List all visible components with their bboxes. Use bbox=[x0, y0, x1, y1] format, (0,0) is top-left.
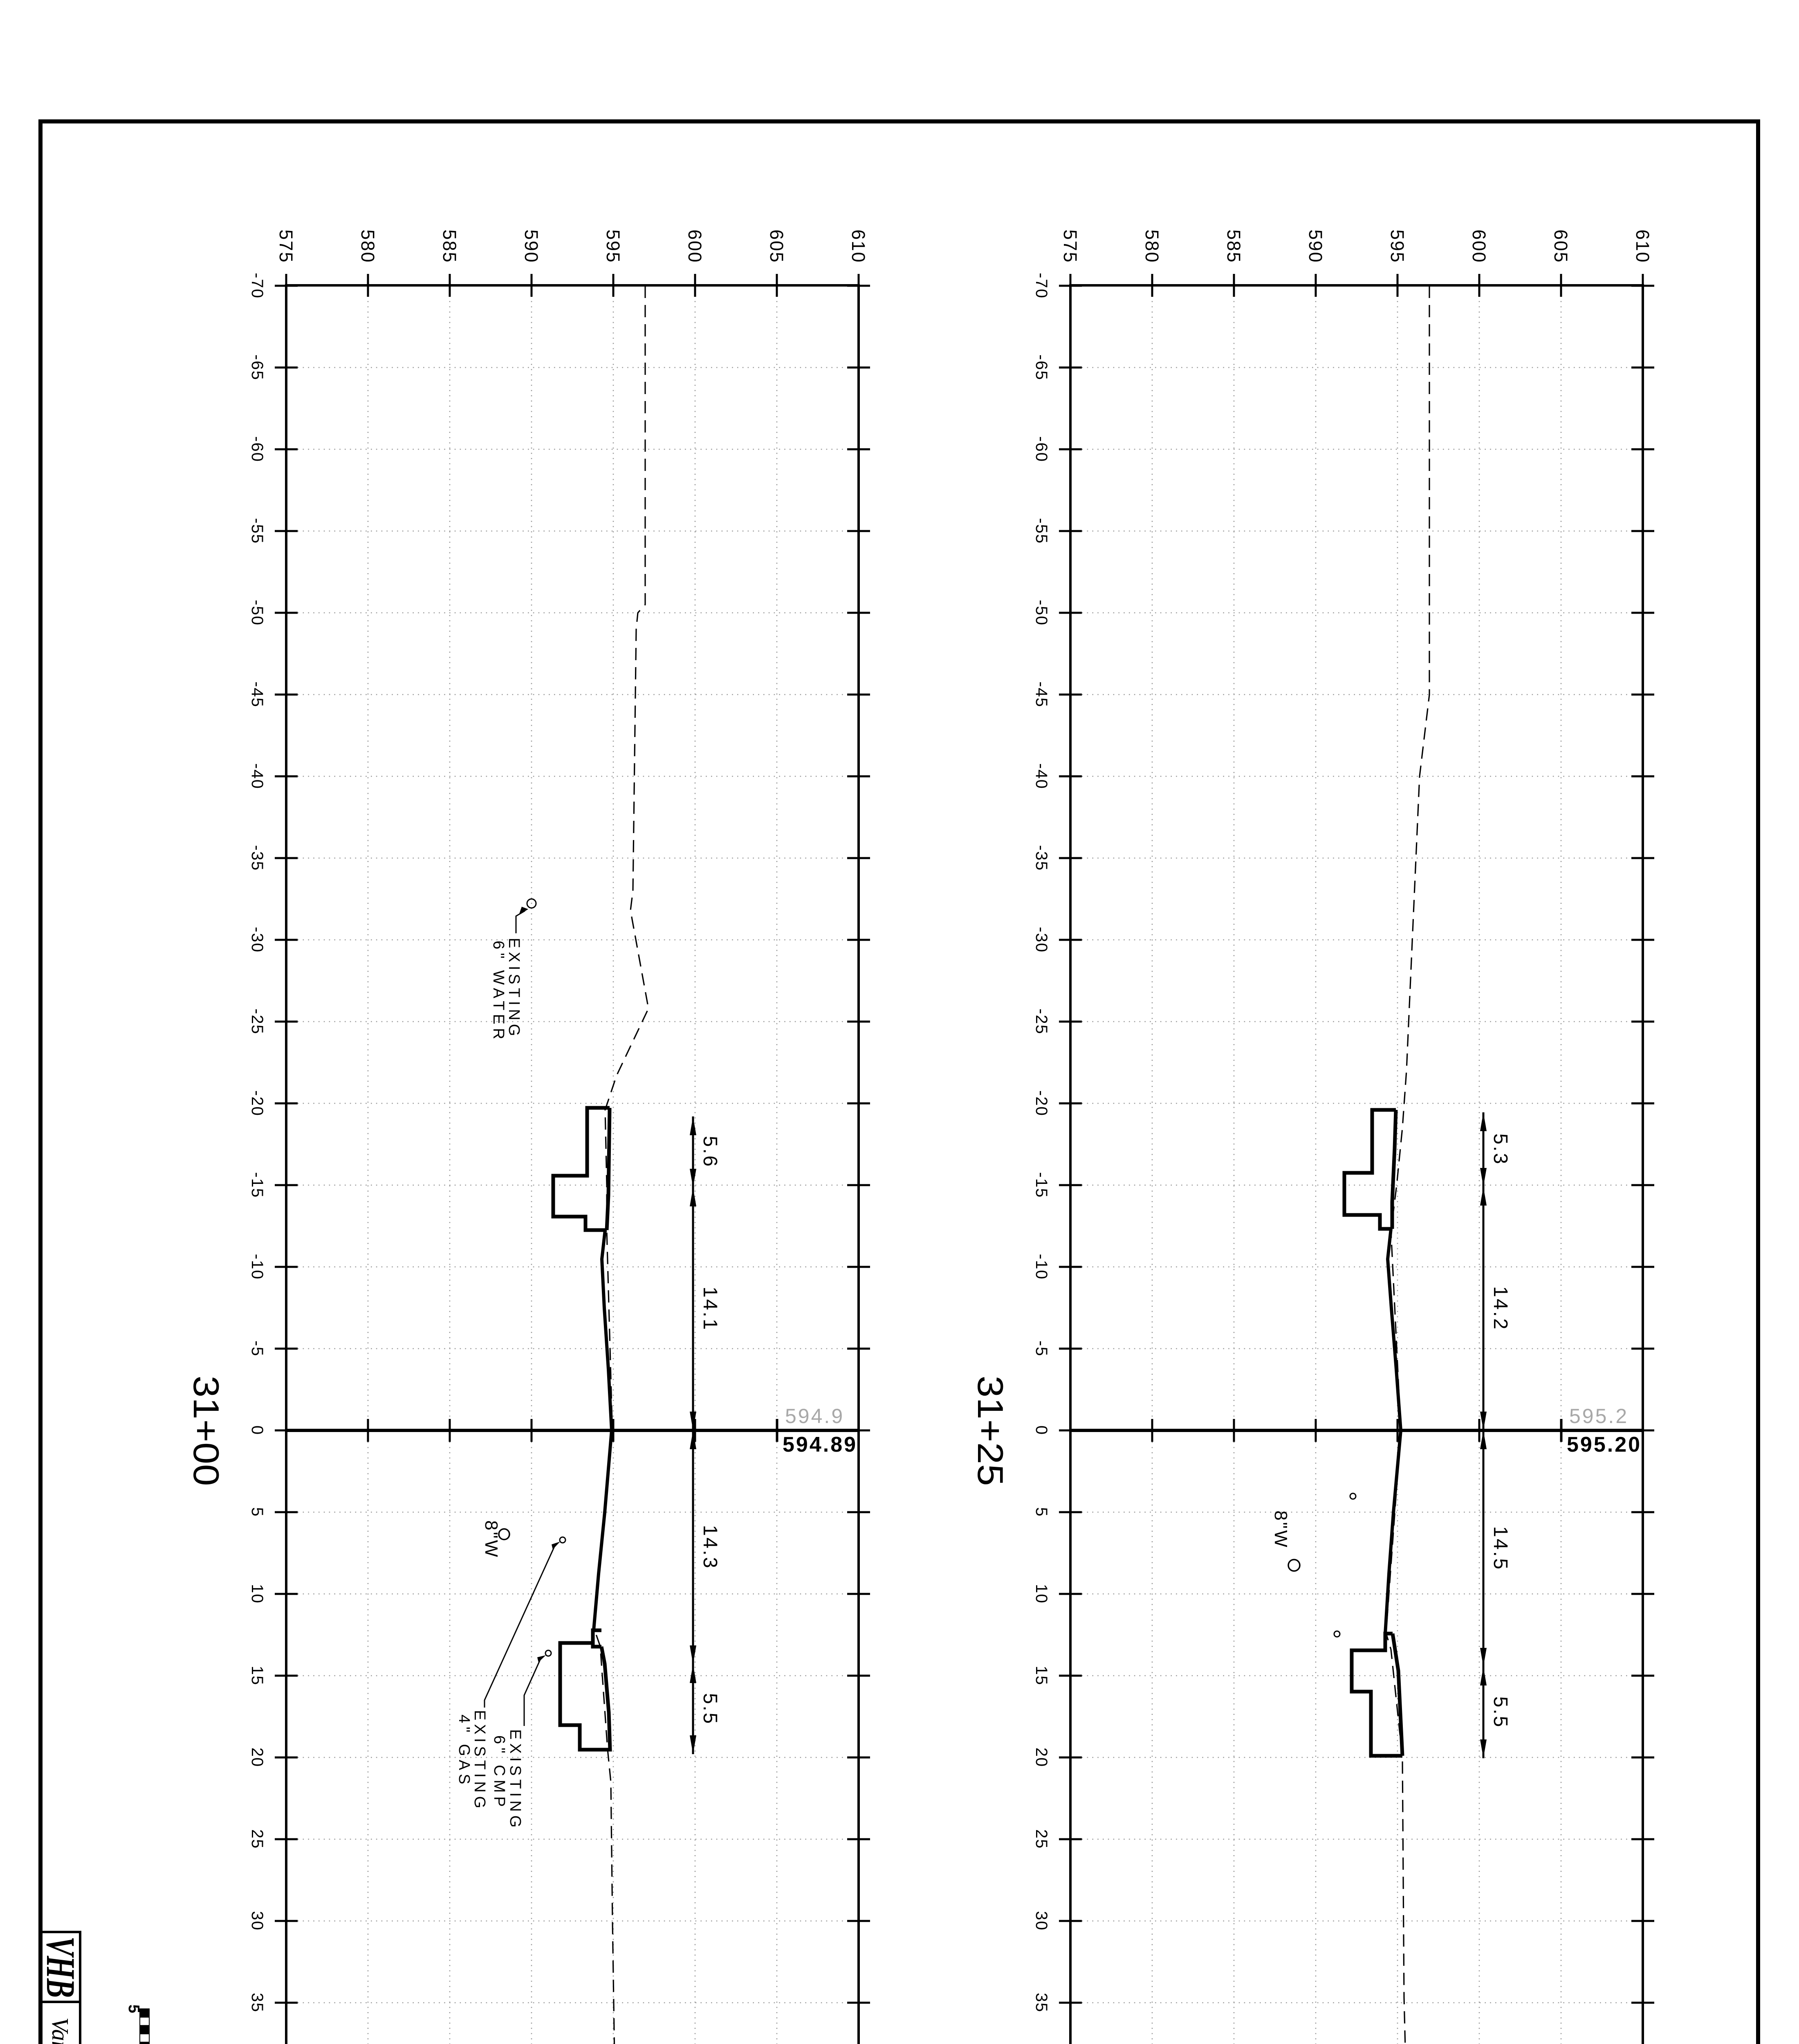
svg-text:585: 585 bbox=[439, 229, 460, 263]
svg-text:-20: -20 bbox=[1032, 1090, 1050, 1116]
svg-text:4" GAS: 4" GAS bbox=[455, 1715, 473, 1788]
svg-text:30: 30 bbox=[1032, 1911, 1050, 1931]
svg-text:10: 10 bbox=[1032, 1584, 1050, 1604]
svg-text:30: 30 bbox=[248, 1911, 266, 1931]
svg-text:-15: -15 bbox=[248, 1172, 266, 1198]
svg-text:5.3: 5.3 bbox=[1489, 1134, 1511, 1166]
svg-text:5.5: 5.5 bbox=[699, 1693, 721, 1726]
svg-text:-70: -70 bbox=[1032, 273, 1050, 299]
svg-text:-45: -45 bbox=[248, 681, 266, 708]
svg-text:-5: -5 bbox=[1032, 1340, 1050, 1357]
svg-text:-25: -25 bbox=[248, 1009, 266, 1035]
svg-text:595.2: 595.2 bbox=[1569, 1405, 1629, 1428]
svg-text:-50: -50 bbox=[1032, 600, 1050, 626]
svg-text:-55: -55 bbox=[248, 518, 266, 544]
svg-text:-55: -55 bbox=[1032, 518, 1050, 544]
svg-text:31+00: 31+00 bbox=[186, 1376, 227, 1486]
svg-text:Vanasse Hangen Brustlin, Inc.: Vanasse Hangen Brustlin, Inc. bbox=[47, 2017, 74, 2044]
svg-text:VHB: VHB bbox=[38, 1936, 83, 1998]
svg-text:590: 590 bbox=[1305, 229, 1326, 263]
svg-text:8"W: 8"W bbox=[481, 1520, 501, 1559]
svg-text:595: 595 bbox=[603, 229, 624, 263]
svg-text:-65: -65 bbox=[1032, 354, 1050, 381]
svg-text:35: 35 bbox=[248, 1993, 266, 2013]
svg-text:594.89: 594.89 bbox=[783, 1433, 857, 1457]
svg-text:35: 35 bbox=[1032, 1993, 1050, 2013]
svg-text:6" CMP: 6" CMP bbox=[491, 1735, 508, 1811]
svg-text:5: 5 bbox=[1032, 1507, 1050, 1517]
svg-text:EXISTING: EXISTING bbox=[471, 1710, 488, 1812]
svg-text:0: 0 bbox=[248, 1425, 266, 1435]
svg-text:-35: -35 bbox=[248, 845, 266, 871]
svg-text:-10: -10 bbox=[1032, 1254, 1050, 1280]
svg-text:595: 595 bbox=[1387, 229, 1408, 263]
svg-text:595.20: 595.20 bbox=[1567, 1433, 1642, 1457]
svg-text:-70: -70 bbox=[248, 273, 266, 299]
svg-text:-45: -45 bbox=[1032, 681, 1050, 708]
svg-text:-65: -65 bbox=[248, 354, 266, 381]
svg-text:-20: -20 bbox=[248, 1090, 266, 1116]
svg-text:6" WATER: 6" WATER bbox=[490, 941, 507, 1043]
svg-text:-30: -30 bbox=[248, 927, 266, 953]
svg-text:20: 20 bbox=[248, 1748, 266, 1768]
svg-text:-60: -60 bbox=[248, 436, 266, 462]
svg-text:EXISTING: EXISTING bbox=[505, 938, 523, 1040]
svg-text:20: 20 bbox=[1032, 1748, 1050, 1768]
svg-text:-40: -40 bbox=[248, 763, 266, 789]
svg-text:31+25: 31+25 bbox=[970, 1376, 1011, 1486]
svg-text:580: 580 bbox=[357, 229, 378, 263]
svg-text:-25: -25 bbox=[1032, 1009, 1050, 1035]
svg-text:575: 575 bbox=[276, 229, 296, 263]
svg-text:25: 25 bbox=[248, 1829, 266, 1849]
svg-text:15: 15 bbox=[248, 1666, 266, 1686]
svg-text:-10: -10 bbox=[248, 1254, 266, 1280]
svg-text:14.1: 14.1 bbox=[699, 1286, 721, 1331]
svg-text:-15: -15 bbox=[1032, 1172, 1050, 1198]
svg-text:605: 605 bbox=[1550, 229, 1571, 263]
svg-text:14.2: 14.2 bbox=[1489, 1286, 1511, 1331]
svg-text:580: 580 bbox=[1142, 229, 1162, 263]
svg-text:575: 575 bbox=[1060, 229, 1081, 263]
svg-text:5: 5 bbox=[125, 2004, 142, 2013]
svg-text:-30: -30 bbox=[1032, 927, 1050, 953]
svg-text:610: 610 bbox=[1632, 229, 1653, 263]
svg-text:-50: -50 bbox=[248, 600, 266, 626]
svg-text:605: 605 bbox=[766, 229, 787, 263]
svg-text:5.6: 5.6 bbox=[699, 1136, 721, 1168]
svg-text:-35: -35 bbox=[1032, 845, 1050, 871]
svg-text:14.5: 14.5 bbox=[1489, 1526, 1511, 1571]
svg-text:0: 0 bbox=[1032, 1425, 1050, 1435]
svg-text:14.3: 14.3 bbox=[699, 1525, 721, 1569]
svg-text:5.5: 5.5 bbox=[1489, 1697, 1511, 1729]
svg-text:10: 10 bbox=[248, 1584, 266, 1604]
svg-text:25: 25 bbox=[1032, 1829, 1050, 1849]
svg-text:5: 5 bbox=[248, 1507, 266, 1517]
svg-text:-40: -40 bbox=[1032, 763, 1050, 789]
svg-text:-5: -5 bbox=[248, 1340, 266, 1357]
svg-text:600: 600 bbox=[684, 229, 705, 263]
svg-text:590: 590 bbox=[521, 229, 542, 263]
svg-text:15: 15 bbox=[1032, 1666, 1050, 1686]
svg-text:-60: -60 bbox=[1032, 436, 1050, 462]
svg-text:600: 600 bbox=[1469, 229, 1489, 263]
svg-text:594.9: 594.9 bbox=[785, 1405, 844, 1428]
svg-text:EXISTING: EXISTING bbox=[507, 1729, 524, 1831]
svg-text:585: 585 bbox=[1223, 229, 1244, 263]
svg-text:610: 610 bbox=[848, 229, 869, 263]
svg-text:8"W: 8"W bbox=[1271, 1511, 1291, 1549]
